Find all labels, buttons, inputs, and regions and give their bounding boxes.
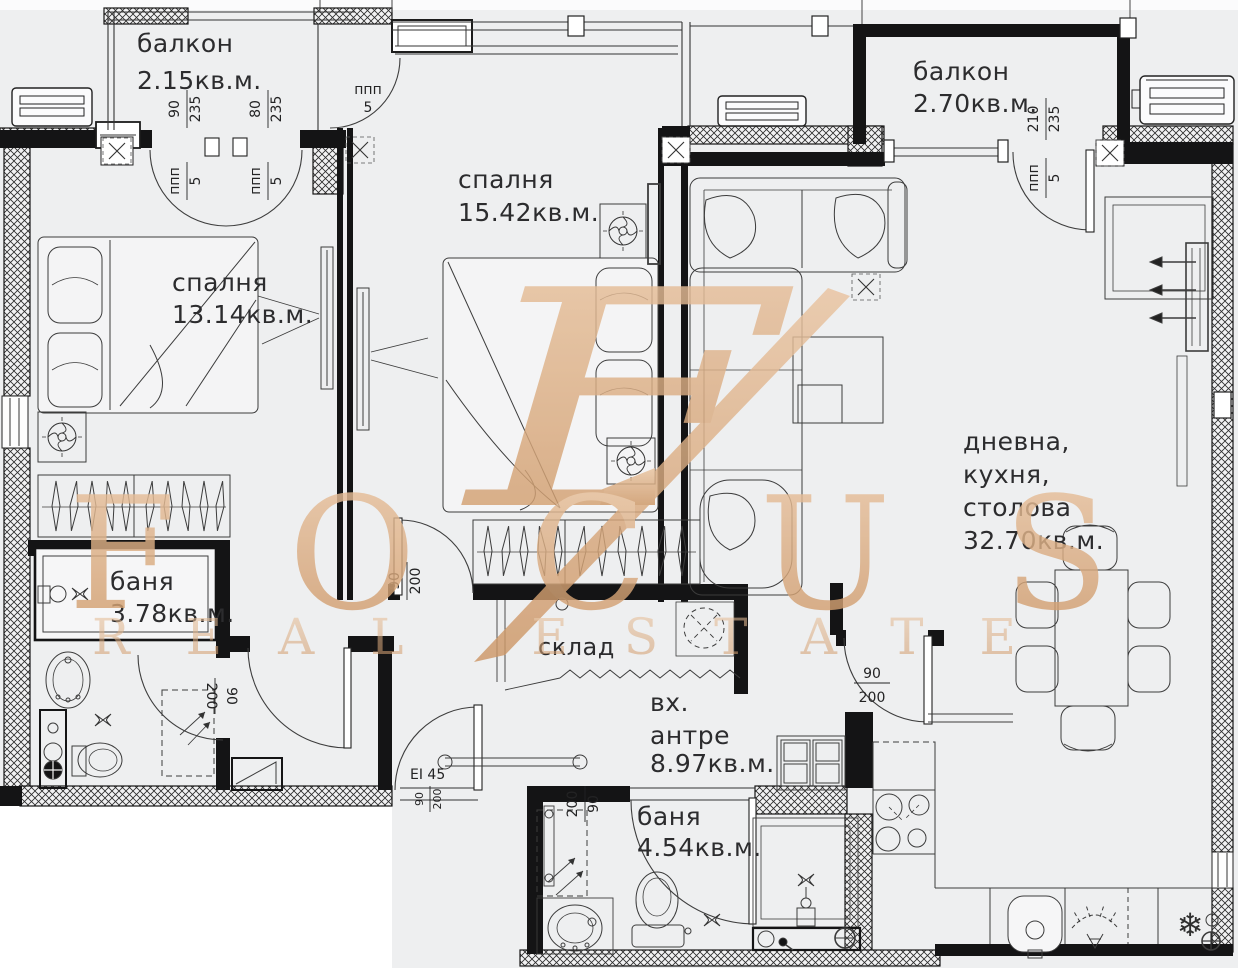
label-bedroom-top-area: 15.42кв.м.: [458, 198, 599, 227]
dim-text: 235: [188, 96, 204, 123]
dim-text: 200: [565, 791, 581, 818]
label-entry-area: 8.97кв.м.: [650, 749, 775, 778]
dim-text: ппп: [354, 82, 381, 98]
label-bedroom-left-name: спалня: [172, 268, 268, 297]
floorplan-drawing: ❄: [0, 0, 1238, 968]
label-balcony-left-area: 2.15кв.м.: [137, 66, 262, 95]
label-balcony-right-name: балкон: [913, 57, 1009, 86]
dim-text: 90: [863, 666, 881, 682]
dim-text: 5: [188, 177, 204, 186]
label-bedroom-top-name: спалня: [458, 165, 554, 194]
dim-text: ппп: [248, 167, 264, 194]
dim-text: 200: [859, 690, 886, 706]
dim-text: 90: [413, 792, 426, 806]
dim-text: 5: [364, 100, 373, 116]
dim-text: 235: [269, 96, 285, 123]
window-left-wall: [2, 396, 28, 448]
label-bath-bottom-name: баня: [637, 802, 701, 831]
door-fire-rating: EI 45: [410, 767, 445, 783]
window-right-wall: [1212, 852, 1233, 888]
label-entry-line2: антре: [650, 721, 730, 750]
dim-text: 90: [223, 687, 239, 705]
label-bath-bottom-area: 4.54кв.м.: [637, 833, 762, 862]
dim-text: ппп: [1026, 164, 1042, 191]
label-balcony-right-area: 2.70кв.м.: [913, 89, 1038, 118]
dim-text: 200: [203, 683, 219, 710]
outside-bottom-left: [0, 806, 392, 968]
label-entry-line1: вх.: [650, 688, 689, 717]
dim-text: 200: [431, 789, 444, 810]
right-wall-inset: [1214, 392, 1231, 418]
dim-text: 5: [1047, 174, 1063, 183]
ac-unit-icon: [1140, 76, 1234, 124]
floorplan-page: ❄: [0, 0, 1238, 968]
sink: [1008, 896, 1062, 952]
watermark-subtitle: REAL ESTATE: [92, 608, 1072, 666]
dim-text: 90: [167, 100, 183, 118]
dim-text: ппп: [167, 167, 183, 194]
ac-unit-icon: [12, 88, 92, 126]
fridge-icon: ❄: [1177, 906, 1204, 944]
window-terrace: [392, 20, 472, 52]
dim-text: 80: [248, 100, 264, 118]
label-bedroom-left-area: 13.14кв.м.: [172, 300, 313, 329]
ac-unit-icon: [718, 96, 806, 126]
label-living-line1: дневна,: [963, 427, 1070, 456]
label-balcony-left-name: балкон: [137, 29, 233, 58]
dim-text: 235: [1047, 106, 1063, 133]
dim-text: 5: [269, 177, 285, 186]
dim-text: 90: [586, 795, 602, 813]
